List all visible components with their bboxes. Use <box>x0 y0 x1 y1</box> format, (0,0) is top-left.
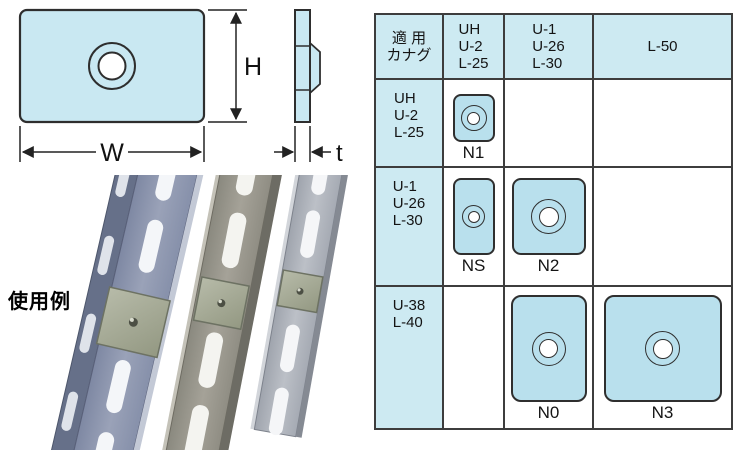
plate-hole <box>461 105 487 131</box>
col-header-1: UH U-2 L-25 <box>443 14 504 79</box>
cell-ns: NS <box>443 167 504 286</box>
table-row: UH U-2 L-25 N1 <box>375 79 732 167</box>
row-header-2: U-1 U-26 L-30 <box>375 167 443 286</box>
boss-profile <box>310 43 320 93</box>
nut-plate <box>194 277 250 329</box>
technical-drawing: H W t <box>0 0 380 172</box>
thickness-label: t <box>336 140 343 167</box>
header-row: 適 用 カナグ UH U-2 L-25 U-1 U-26 L-30 L-50 <box>375 14 732 79</box>
plate-label: N1 <box>463 144 485 161</box>
front-view <box>20 10 204 122</box>
plate-label: N2 <box>538 257 560 274</box>
empty-cell <box>443 286 504 429</box>
plate-side <box>295 10 310 122</box>
cell-n2: N2 <box>504 167 593 286</box>
plate-hole <box>532 332 566 366</box>
plate-hole-inner <box>539 339 558 358</box>
col-header-3: L-50 <box>593 14 732 79</box>
usage-example-caption: 使用例 <box>8 285 71 314</box>
plate-hole-inner <box>653 339 673 359</box>
corner-header: 適 用 カナグ <box>375 14 443 79</box>
plate-n0 <box>511 295 587 402</box>
cell-n0: N0 <box>504 286 593 429</box>
plate-hole-inner <box>539 207 559 227</box>
dim-height <box>208 10 247 122</box>
plate-ns <box>453 178 495 255</box>
row-header-1: UH U-2 L-25 <box>375 79 443 167</box>
table-row: U-1 U-26 L-30 NS N2 <box>375 167 732 286</box>
col-header-2: U-1 U-26 L-30 <box>504 14 593 79</box>
hole-inner-circle <box>99 53 126 80</box>
side-view <box>295 10 320 122</box>
plate-label: NS <box>462 257 486 274</box>
fitting-table: 適 用 カナグ UH U-2 L-25 U-1 U-26 L-30 L-50 U… <box>374 13 733 430</box>
height-label: H <box>244 53 262 81</box>
cell-n3: N3 <box>593 286 732 429</box>
plate-hole <box>531 199 566 234</box>
empty-cell <box>504 79 593 167</box>
plate-n3 <box>604 295 722 402</box>
width-label: W <box>100 139 124 167</box>
nut-plate <box>277 270 323 312</box>
plate-hole <box>462 205 485 228</box>
usage-photo <box>28 175 376 450</box>
empty-cell <box>593 79 732 167</box>
catalog-page: H W t <box>0 0 750 450</box>
plate-hole-inner <box>468 211 480 223</box>
plate-label: N0 <box>538 404 560 421</box>
row-header-3: U-38 L-40 <box>375 286 443 429</box>
plate-n1 <box>453 94 495 142</box>
table-row: U-38 L-40 N0 N3 <box>375 286 732 429</box>
plate-label: N3 <box>652 404 674 421</box>
cell-n1: N1 <box>443 79 504 167</box>
dim-thickness <box>274 126 331 162</box>
empty-cell <box>593 167 732 286</box>
plate-hole <box>645 331 680 366</box>
plate-n2 <box>512 178 586 255</box>
plate-hole-inner <box>467 112 480 125</box>
